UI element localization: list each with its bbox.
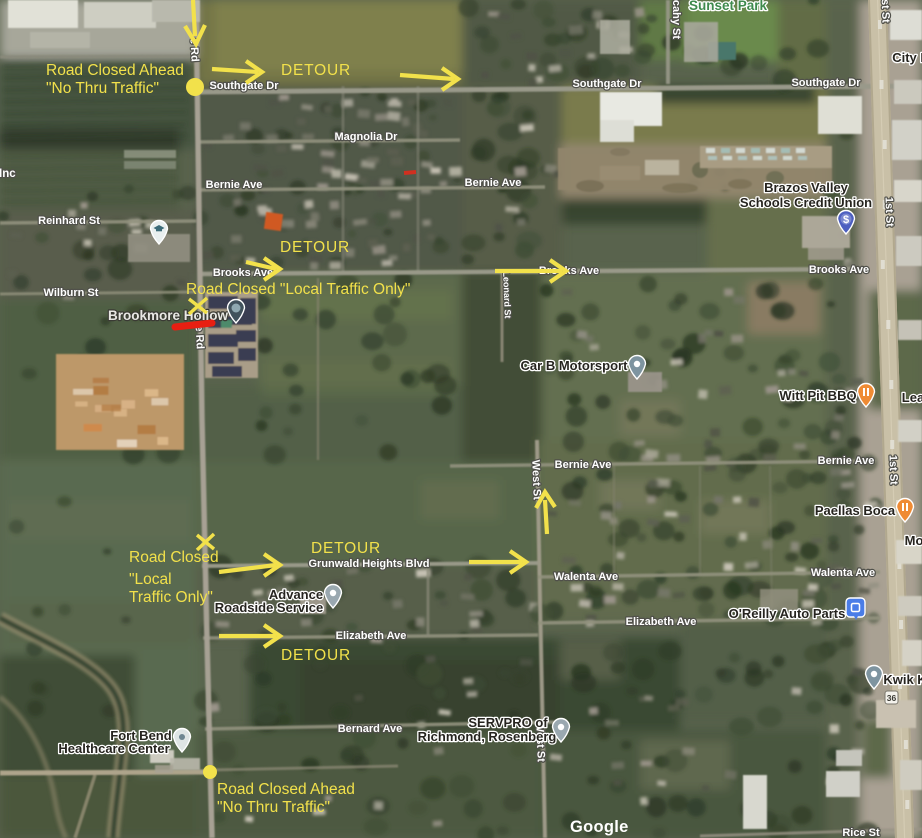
svg-text:Richmond, Rosenberg: Richmond, Rosenberg <box>418 729 557 744</box>
svg-text:Magnolia Dr: Magnolia Dr <box>335 131 399 143</box>
svg-text:Witt Pit BBQ: Witt Pit BBQ <box>779 388 856 403</box>
svg-text:SERVPRO of: SERVPRO of <box>468 715 548 730</box>
svg-text:DETOUR: DETOUR <box>281 647 351 664</box>
svg-text:Schools Credit Union: Schools Credit Union <box>740 195 872 210</box>
svg-text:Mo: Mo <box>905 533 922 548</box>
svg-text:Bernard Ave: Bernard Ave <box>338 723 403 735</box>
svg-text:Elizabeth Ave: Elizabeth Ave <box>626 616 697 628</box>
svg-text:Inc: Inc <box>0 168 16 180</box>
svg-text:Wilburn St: Wilburn St <box>44 287 99 299</box>
svg-text:Grunwald Heights Blvd: Grunwald Heights Blvd <box>308 558 429 570</box>
svg-text:Rice St: Rice St <box>842 827 880 838</box>
svg-text:Southgate Dr: Southgate Dr <box>791 77 861 89</box>
svg-text:Paellas Boca: Paellas Boca <box>815 503 896 518</box>
svg-text:Google: Google <box>570 818 629 836</box>
svg-text:36: 36 <box>887 693 897 703</box>
svg-text:Brooks Ave: Brooks Ave <box>809 264 869 276</box>
svg-text:O'Reilly Auto Parts: O'Reilly Auto Parts <box>729 606 846 621</box>
svg-text:Brooks Ave: Brooks Ave <box>213 267 273 279</box>
svg-text:Healthcare Center: Healthcare Center <box>58 741 169 756</box>
svg-text:Road Closed: Road Closed <box>129 549 219 566</box>
svg-text:Sunset Park: Sunset Park <box>689 0 768 13</box>
svg-text:1st St: 1st St <box>878 0 891 23</box>
svg-text:Leonard St: Leonard St <box>501 271 513 318</box>
svg-text:Walenta Ave: Walenta Ave <box>554 571 618 583</box>
svg-text:"Local: "Local <box>129 571 172 588</box>
svg-text:Bernie Ave: Bernie Ave <box>555 459 612 471</box>
svg-text:Road Closed Ahead: Road Closed Ahead <box>46 62 184 79</box>
svg-text:Reinhard St: Reinhard St <box>38 215 100 227</box>
svg-text:Walenta Ave: Walenta Ave <box>811 567 875 579</box>
svg-text:Elizabeth Ave: Elizabeth Ave <box>336 630 407 642</box>
svg-text:Roadside Service: Roadside Service <box>215 600 323 615</box>
svg-text:"No Thru Traffic": "No Thru Traffic" <box>217 799 330 816</box>
svg-text:Road Closed Ahead: Road Closed Ahead <box>217 781 355 798</box>
svg-text:DETOUR: DETOUR <box>311 540 381 557</box>
svg-text:Southgate Dr: Southgate Dr <box>572 78 642 90</box>
svg-text:Southgate Dr: Southgate Dr <box>209 80 279 92</box>
svg-text:1st St: 1st St <box>886 455 899 486</box>
svg-text:$: $ <box>843 214 849 226</box>
svg-text:Bernie Ave: Bernie Ave <box>818 455 875 467</box>
svg-text:"No Thru Traffic": "No Thru Traffic" <box>46 80 159 97</box>
svg-text:DETOUR: DETOUR <box>281 62 351 79</box>
svg-text:West St: West St <box>529 460 542 501</box>
svg-text:Mulcahy St: Mulcahy St <box>670 0 682 39</box>
svg-text:1st St: 1st St <box>882 197 895 228</box>
svg-text:Brazos Valley: Brazos Valley <box>764 180 849 195</box>
svg-text:Bernie Ave: Bernie Ave <box>206 179 263 191</box>
svg-text:DETOUR: DETOUR <box>280 239 350 256</box>
svg-text:Kwik K: Kwik K <box>883 672 922 687</box>
svg-text:Bernie Ave: Bernie Ave <box>465 177 522 189</box>
svg-text:Traffic Only": Traffic Only" <box>129 589 213 606</box>
svg-text:Car B Motorsport: Car B Motorsport <box>521 358 629 373</box>
svg-text:Road Closed "Local Traffic Onl: Road Closed "Local Traffic Only" <box>186 281 410 298</box>
svg-text:City H: City H <box>892 50 922 65</box>
svg-text:Lea: Lea <box>902 390 922 405</box>
